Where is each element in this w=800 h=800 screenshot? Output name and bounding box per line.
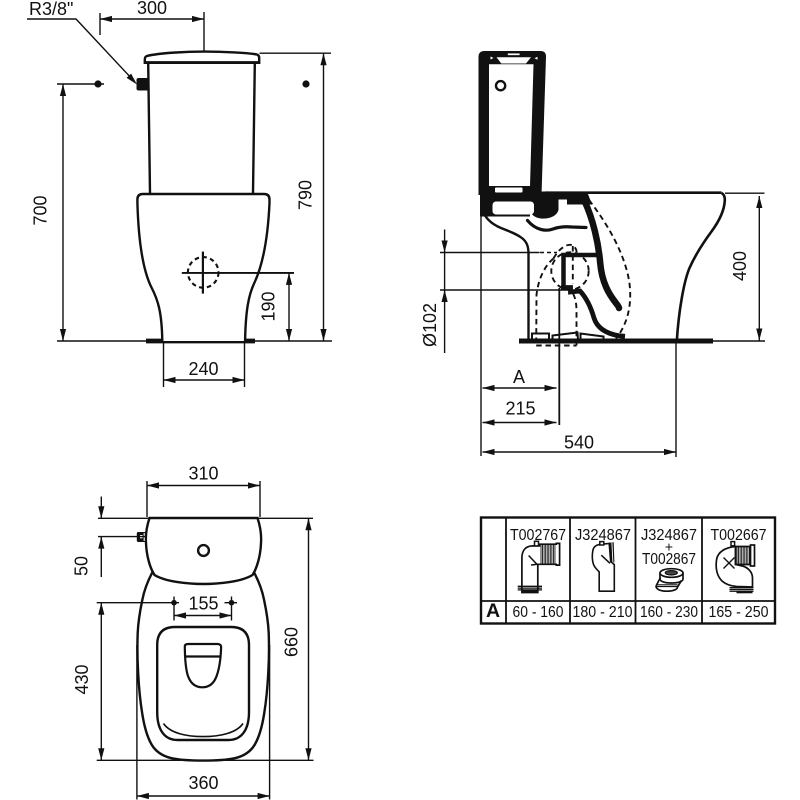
svg-text:660: 660 — [282, 627, 302, 657]
svg-text:300: 300 — [137, 0, 167, 18]
svg-text:155: 155 — [188, 594, 218, 614]
svg-text:700: 700 — [31, 195, 51, 225]
svg-text:190: 190 — [259, 291, 279, 321]
svg-text:540: 540 — [564, 433, 594, 453]
svg-text:A: A — [513, 367, 525, 387]
svg-text:310: 310 — [188, 464, 218, 484]
svg-text:60 - 160: 60 - 160 — [513, 604, 564, 621]
svg-text:360: 360 — [188, 773, 218, 793]
svg-text:T002867: T002867 — [642, 551, 696, 568]
svg-text:790: 790 — [296, 180, 316, 210]
svg-text:430: 430 — [72, 664, 92, 694]
svg-text:215: 215 — [505, 399, 535, 419]
svg-text:180 - 210: 180 - 210 — [573, 604, 633, 621]
svg-text:R3/8": R3/8" — [29, 0, 73, 19]
svg-text:240: 240 — [188, 359, 218, 379]
svg-text:400: 400 — [730, 251, 750, 281]
svg-text:165 - 250: 165 - 250 — [709, 604, 769, 621]
svg-text:160 - 230: 160 - 230 — [640, 604, 698, 621]
svg-text:T002667: T002667 — [711, 527, 767, 544]
svg-text:A: A — [486, 600, 500, 622]
svg-text:50: 50 — [72, 556, 92, 576]
svg-text:Ø102: Ø102 — [420, 303, 440, 347]
